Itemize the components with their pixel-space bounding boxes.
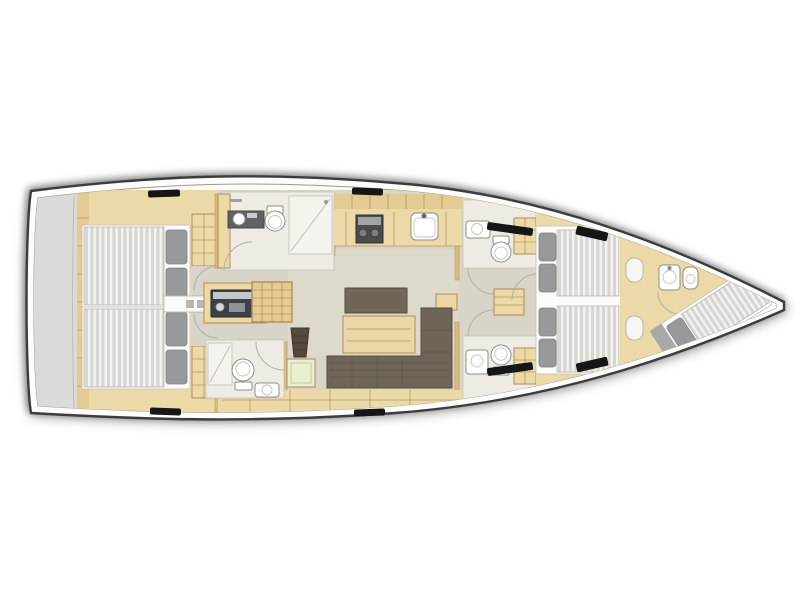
bow-cabin bbox=[650, 220, 779, 392]
companionway-stairs bbox=[252, 282, 292, 322]
hatch bbox=[150, 407, 181, 415]
bed-mattress bbox=[84, 227, 164, 305]
bed-mattress bbox=[84, 309, 164, 387]
hatch bbox=[148, 189, 180, 197]
sideboard bbox=[345, 288, 407, 313]
compass-icon bbox=[216, 303, 224, 311]
shower bbox=[289, 196, 332, 254]
bedside-unit bbox=[626, 316, 643, 340]
yacht-floorplan-image bbox=[0, 0, 800, 601]
yacht-floorplan bbox=[0, 0, 800, 601]
saloon-table bbox=[343, 316, 415, 353]
hatch bbox=[354, 408, 385, 416]
wet-bar-unit bbox=[287, 359, 315, 387]
wardrobe bbox=[192, 214, 216, 266]
vestibule-step bbox=[494, 289, 524, 315]
pillow bbox=[539, 339, 556, 367]
pillow bbox=[539, 308, 556, 336]
toilet bbox=[491, 236, 511, 262]
bow-toilet bbox=[683, 267, 698, 289]
berth-center-gap bbox=[537, 297, 623, 305]
deck-fitting bbox=[230, 199, 242, 202]
galley-overhead-lockers bbox=[334, 194, 462, 209]
washbasin bbox=[228, 211, 264, 228]
galley bbox=[334, 194, 462, 246]
saloon bbox=[327, 288, 457, 388]
hatch bbox=[352, 187, 383, 195]
pillow bbox=[166, 312, 187, 346]
washbasin bbox=[255, 383, 279, 397]
nav-seat bbox=[291, 328, 309, 357]
washbasin bbox=[466, 221, 490, 238]
stove bbox=[356, 215, 383, 243]
interior bbox=[33, 190, 779, 416]
pillow bbox=[166, 230, 187, 264]
swim-platform-deck bbox=[33, 190, 77, 416]
pillow bbox=[539, 264, 556, 292]
bow-washbasin bbox=[659, 265, 680, 290]
pillow bbox=[166, 350, 187, 384]
instrument-screen bbox=[213, 292, 253, 299]
pillow bbox=[539, 233, 556, 261]
instrument-display bbox=[229, 303, 245, 312]
swim-platform bbox=[33, 190, 77, 416]
port-heads bbox=[218, 192, 334, 270]
bedside-unit bbox=[626, 258, 643, 282]
shower bbox=[208, 343, 232, 385]
bathroom-locker bbox=[218, 194, 230, 268]
galley-sink bbox=[411, 213, 438, 240]
berth-port-mattress bbox=[557, 230, 619, 296]
washbasin bbox=[466, 350, 488, 374]
starboard-aft-heads bbox=[206, 340, 284, 398]
toilet bbox=[232, 359, 254, 390]
toilet bbox=[265, 206, 285, 231]
